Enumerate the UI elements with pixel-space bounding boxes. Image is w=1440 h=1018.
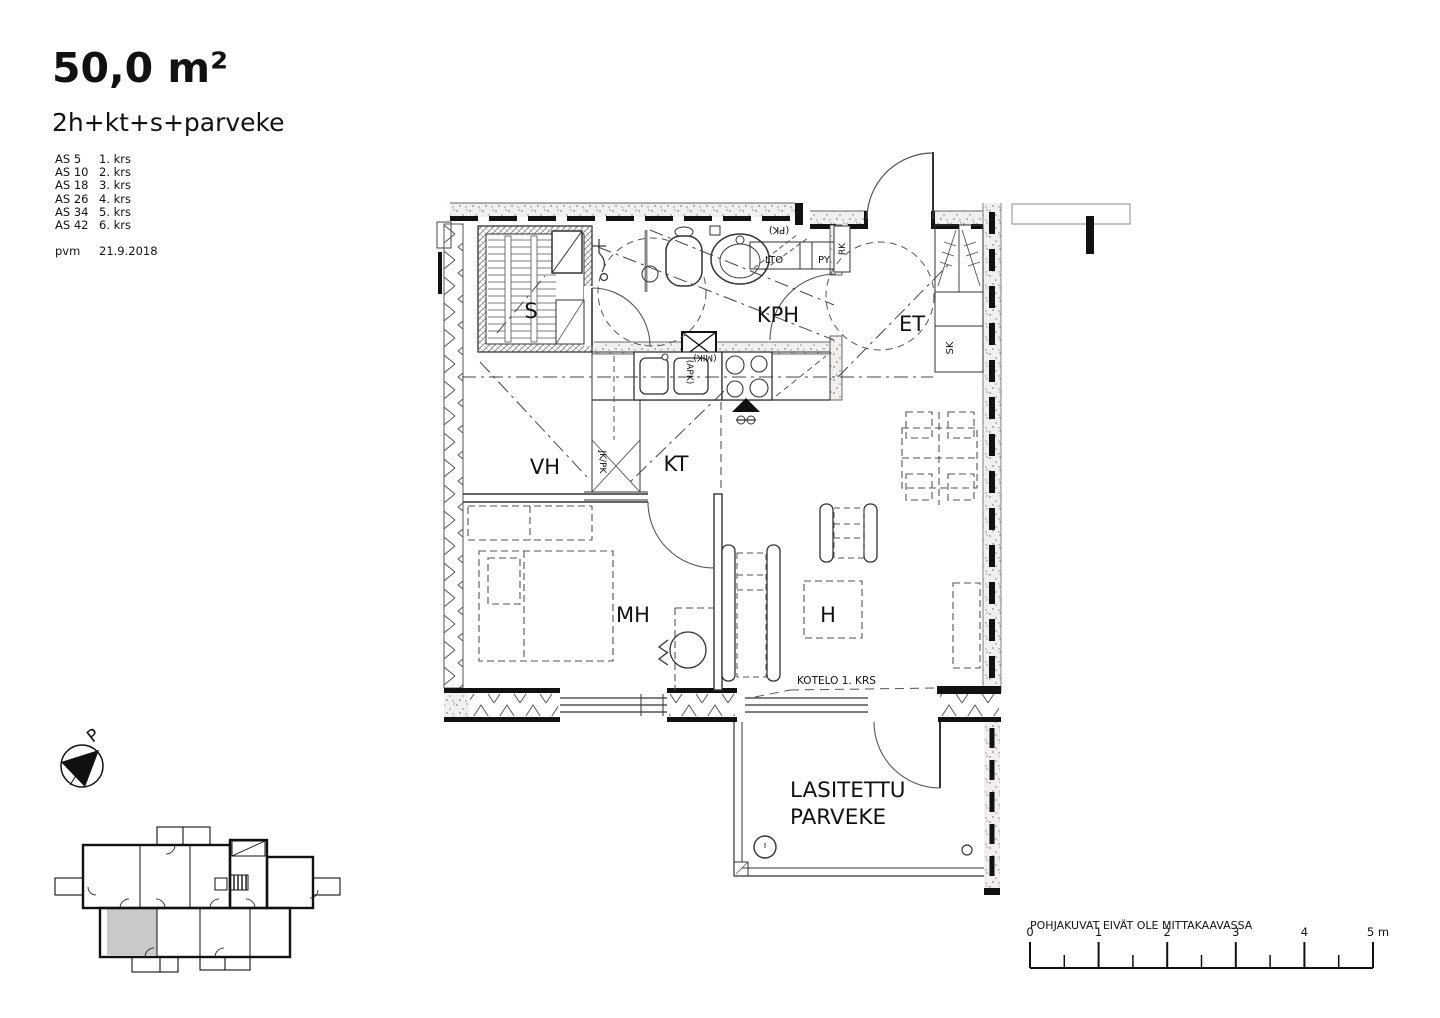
desk-chair-icon [659, 632, 706, 668]
label-rk: RK [838, 242, 848, 255]
key-plan [55, 827, 340, 972]
living-furniture [722, 412, 980, 697]
sofa [722, 545, 780, 681]
label-py: PY [818, 255, 831, 266]
shower-icon [592, 239, 608, 281]
label-kotelo: KOTELO 1. KRS [797, 675, 876, 687]
balcony-label-line2: PARVEKE [790, 805, 886, 830]
room-label-bathroom: KPH [757, 303, 799, 327]
room-label-sauna: S [524, 299, 537, 323]
label-sk: SK [945, 341, 956, 354]
north-compass: P [61, 725, 104, 787]
label-jkpk: JK/PK [597, 450, 607, 475]
bathroom-fixtures [592, 226, 850, 346]
armchair [820, 504, 877, 562]
scale-tick-2: 2 [1164, 925, 1171, 939]
scale-disclaimer: POHJAKUVAT EIVÄT OLE MITTAKAAVASSA [1030, 919, 1253, 932]
label-pk: (PK) [769, 224, 789, 235]
stairwell-icon [230, 875, 248, 890]
label-apk: (APK) [684, 360, 694, 385]
scale-bar: POHJAKUVAT EIVÄT OLE MITTAKAAVASSA 0 1 2… [1026, 919, 1389, 968]
dining-set [902, 412, 977, 505]
cooker-hood-icon [732, 398, 760, 424]
bed [479, 551, 613, 661]
chair [906, 474, 932, 500]
pillow [488, 558, 520, 604]
scale-tick-0: 0 [1026, 925, 1033, 939]
floorplan-page: 50,0 m² 2h+kt+s+parveke AS 51. krs AS 10… [0, 0, 1440, 1018]
floor-drain-icon [642, 266, 658, 282]
balcony-label-line1: LASITETTU [790, 778, 906, 803]
chair [948, 474, 974, 500]
room-label-entry: ET [899, 312, 925, 336]
scale-tick-1: 1 [1095, 925, 1102, 939]
stove-icon [722, 352, 772, 400]
scale-tick-4: 4 [1301, 925, 1308, 939]
chair [906, 412, 932, 438]
kotelo-outline [755, 688, 938, 697]
room-label-kitchen: KT [664, 452, 689, 476]
scale-tick-3: 3 [1232, 925, 1239, 939]
room-label-walkin: VH [530, 455, 560, 479]
label-mik: (MIK) [693, 352, 716, 362]
room-label-living: H [820, 603, 836, 627]
compass-north-letter: P [83, 725, 103, 747]
sauna-room [478, 226, 650, 352]
floor-plan-drawing: S KPH ET VH KT MH H LASITETTU PARVEKE LT… [0, 0, 1440, 1018]
label-lto: LTO [765, 255, 783, 266]
toilet-icon [666, 227, 702, 286]
kitchen-fixtures [584, 352, 830, 500]
highlighted-unit [107, 908, 157, 955]
room-label-bedroom: MH [616, 603, 650, 627]
chair [948, 412, 974, 438]
duct-box [953, 583, 980, 668]
bedroom-furniture [468, 506, 714, 690]
scale-tick-5: 5 m [1367, 925, 1389, 939]
